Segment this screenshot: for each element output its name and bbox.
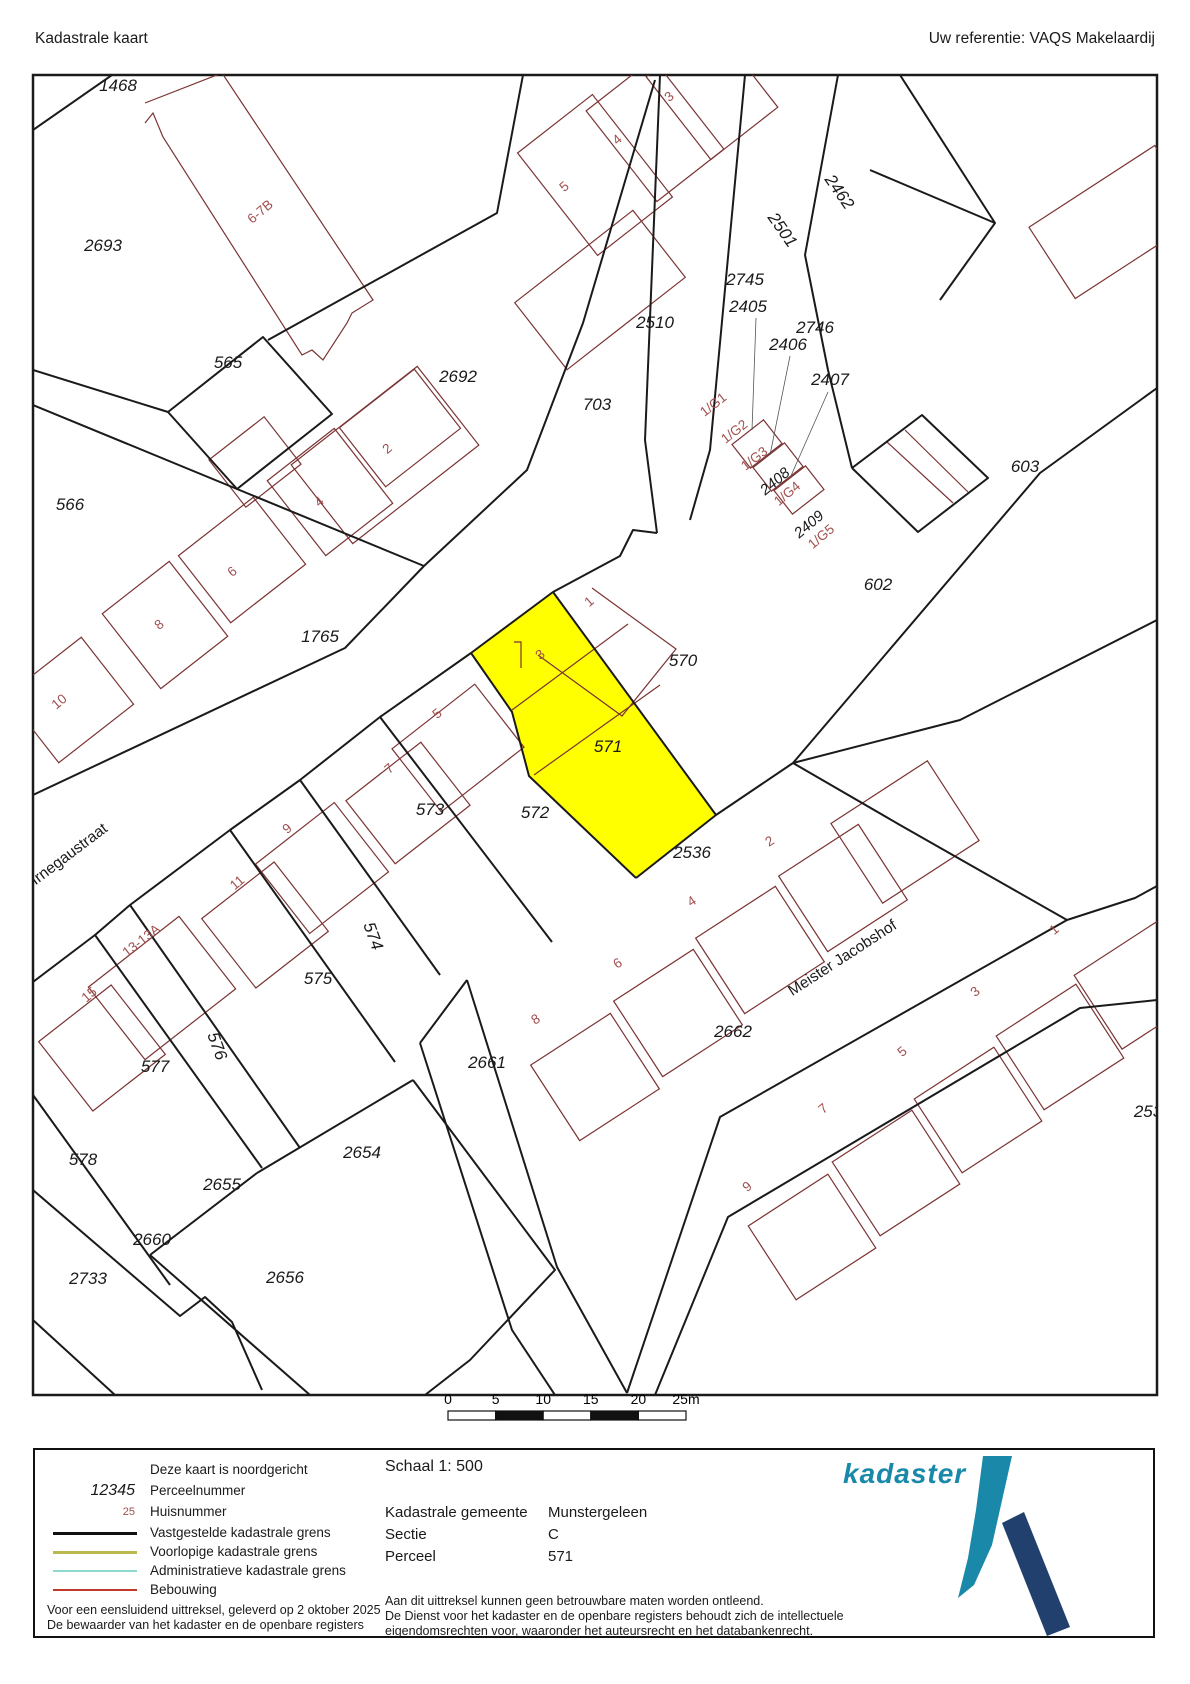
- scale-bar-segment: [448, 1411, 496, 1420]
- scale-bar-segment: [496, 1411, 544, 1420]
- gemeente-value: Munstergeleen: [548, 1504, 647, 1521]
- parcel-number-label: 577: [141, 1057, 170, 1076]
- scale-bar-segment: [591, 1411, 639, 1420]
- building-line: [53, 1589, 137, 1591]
- parcel-number-label: 570: [669, 651, 698, 670]
- parcel-number-label: 1765: [301, 627, 339, 646]
- scale-bar-segment: [543, 1411, 591, 1420]
- legend-provisional-boundary: Voorlopige kadastrale grens: [150, 1544, 317, 1559]
- sectie-value: C: [548, 1526, 559, 1543]
- parcel-number-label: 2662: [713, 1022, 752, 1041]
- legend-administrative-boundary: Administratieve kadastrale grens: [150, 1563, 346, 1578]
- kadaster-logo: [940, 1450, 1155, 1640]
- scale-tick-label: 20: [631, 1391, 647, 1407]
- parcel-number-label: 578: [69, 1150, 98, 1169]
- provisional-boundary-line: [53, 1551, 137, 1554]
- logo-slash-shape: [1002, 1512, 1070, 1636]
- scale-bar-segment: [638, 1411, 686, 1420]
- disclaimer-line3: eigendomsrechten voor, waaronder het aut…: [385, 1624, 844, 1639]
- parcel-number-label: 2510: [635, 313, 674, 332]
- footer-line2: De bewaarder van het kadaster en de open…: [47, 1618, 381, 1633]
- parcel-number-label: 565: [214, 353, 243, 372]
- legend-north-note: Deze kaart is noordgericht: [150, 1462, 308, 1477]
- established-boundary-line: [53, 1532, 137, 1535]
- disclaimer: Aan dit uittreksel kunnen geen betrouwba…: [385, 1594, 844, 1639]
- scale-tick-label: 0: [444, 1391, 452, 1407]
- parcel-number-label: 2693: [83, 236, 122, 255]
- footer-extract: Voor een eensluidend uittreksel, gelever…: [47, 1603, 381, 1633]
- parcel-number-label: 2656: [265, 1268, 304, 1287]
- parcel-number-label: 2692: [438, 367, 477, 386]
- parcel-number-label: 572: [521, 803, 550, 822]
- parcel-number-label: 2407: [810, 370, 849, 389]
- parcel-number-label: 2655: [202, 1175, 241, 1194]
- parcel-number-label: 603: [1011, 457, 1040, 476]
- scale-tick-label: 5: [492, 1391, 500, 1407]
- disclaimer-line2: De Dienst voor het kadaster en de openba…: [385, 1609, 844, 1624]
- parcel-number-label: 566: [56, 495, 85, 514]
- parcel-number-label: 2536: [672, 843, 711, 862]
- cadastral-map-container: 146826936-7B5652692566246810176570325105…: [0, 0, 1190, 1450]
- page: { "header": { "title": "Kadastrale kaart…: [0, 0, 1190, 1684]
- parcel-number-label: 575: [304, 969, 333, 988]
- parcel-number-label: 2733: [68, 1269, 107, 1288]
- parcel-number-label: 2661: [467, 1053, 506, 1072]
- parcel-number-label: 2660: [132, 1230, 171, 1249]
- legend-established-boundary: Vastgestelde kadastrale grens: [150, 1525, 331, 1540]
- parcel-number-label: 602: [864, 575, 893, 594]
- scale-tick-label: 10: [535, 1391, 551, 1407]
- parcel-number-label: 2406: [768, 335, 807, 354]
- perceel-value: 571: [548, 1548, 573, 1565]
- scale-tick-label: 25m: [672, 1391, 699, 1407]
- parcel-number-label: 2405: [728, 297, 767, 316]
- administrative-boundary-line: [53, 1570, 137, 1572]
- parcel-number-sample: 12345: [75, 1482, 135, 1500]
- cadastral-map: 146826936-7B5652692566246810176570325105…: [0, 0, 1190, 1445]
- scale-text: Schaal 1: 500: [385, 1458, 483, 1476]
- scale-tick-label: 15: [583, 1391, 599, 1407]
- parcel-number-label: 703: [583, 395, 612, 414]
- legend-building: Bebouwing: [150, 1582, 217, 1597]
- legend-parcel-number: Perceelnummer: [150, 1483, 245, 1498]
- house-number-sample: 25: [75, 1506, 135, 1518]
- footer-line1: Voor een eensluidend uittreksel, gelever…: [47, 1603, 381, 1618]
- gemeente-label: Kadastrale gemeente: [385, 1504, 528, 1521]
- parcel-number-label: 1468: [99, 76, 137, 95]
- sectie-label: Sectie: [385, 1526, 427, 1543]
- perceel-label: Perceel: [385, 1548, 436, 1565]
- disclaimer-line1: Aan dit uittreksel kunnen geen betrouwba…: [385, 1594, 844, 1609]
- parcel-number-label: 573: [416, 800, 445, 819]
- parcel-number-label: 571: [594, 737, 622, 756]
- parcel-number-label: 2654: [342, 1143, 381, 1162]
- parcel-number-label: 2745: [725, 270, 764, 289]
- legend-house-number: Huisnummer: [150, 1504, 227, 1519]
